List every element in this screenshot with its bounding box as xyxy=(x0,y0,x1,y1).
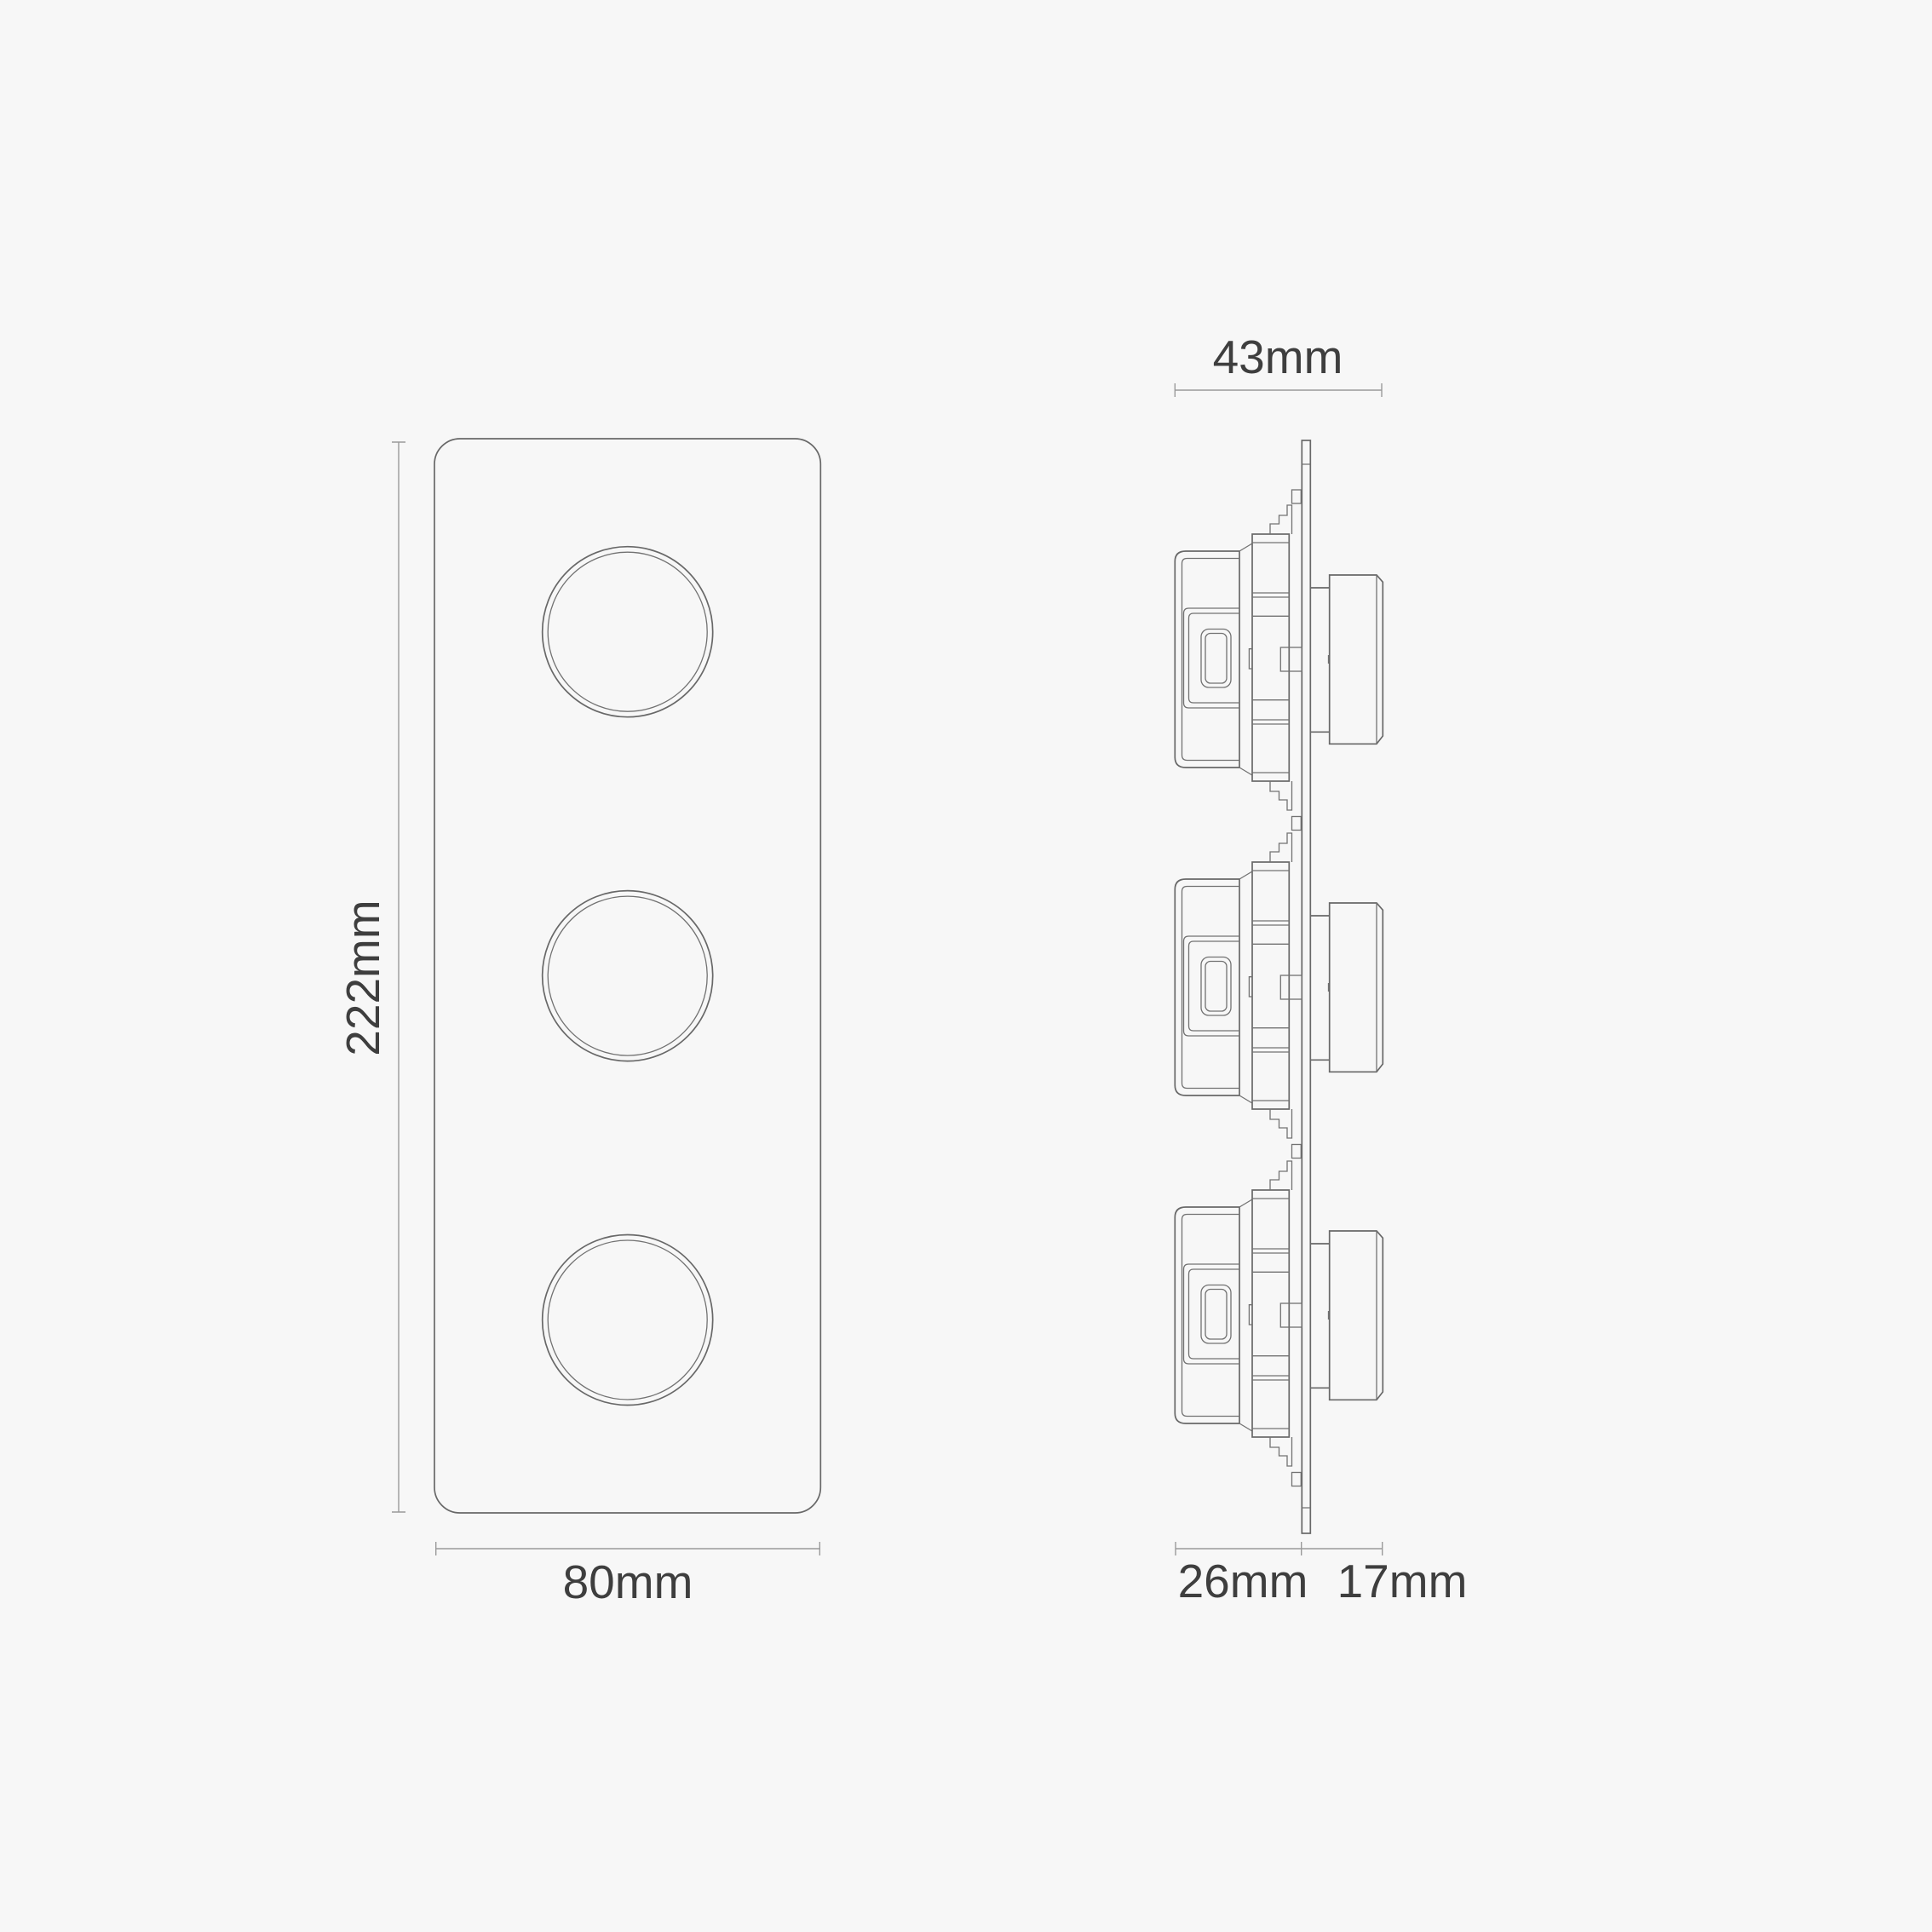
front-knob-ring-1 xyxy=(543,547,713,717)
side-view xyxy=(1175,440,1383,1533)
height-dimension-label: 222mm xyxy=(336,900,389,1055)
depth-behind-plate-label: 26mm xyxy=(1178,1555,1308,1607)
side-wall-plate-caps xyxy=(1302,464,1310,1508)
side-wall-plate xyxy=(1302,440,1310,1533)
side-module-1 xyxy=(1175,505,1383,810)
front-knob-ring-3 xyxy=(543,1235,713,1406)
technical-drawing-page: 222mm 80mm 43mm 26mm 17mm xyxy=(0,0,1932,1932)
width-dimension-label: 80mm xyxy=(563,1555,693,1608)
overall-depth-dimension-label: 43mm xyxy=(1213,331,1343,383)
height-dimension-line xyxy=(392,442,405,1512)
front-view xyxy=(434,439,820,1513)
depth-in-front-label: 17mm xyxy=(1337,1555,1468,1607)
split-depth-dimension-line xyxy=(1176,1542,1383,1555)
side-module-3 xyxy=(1175,1161,1383,1466)
front-knob-ring-2 xyxy=(543,891,713,1061)
dimensions: 222mm 80mm 43mm 26mm 17mm xyxy=(336,331,1467,1608)
dimension-diagram: 222mm 80mm 43mm 26mm 17mm xyxy=(0,0,1932,1932)
plate-fixing-tabs xyxy=(1292,490,1302,1486)
front-plate xyxy=(434,439,820,1513)
width-dimension-line xyxy=(436,1542,820,1555)
overall-depth-dimension-line xyxy=(1175,383,1382,397)
side-module-2 xyxy=(1175,833,1383,1138)
